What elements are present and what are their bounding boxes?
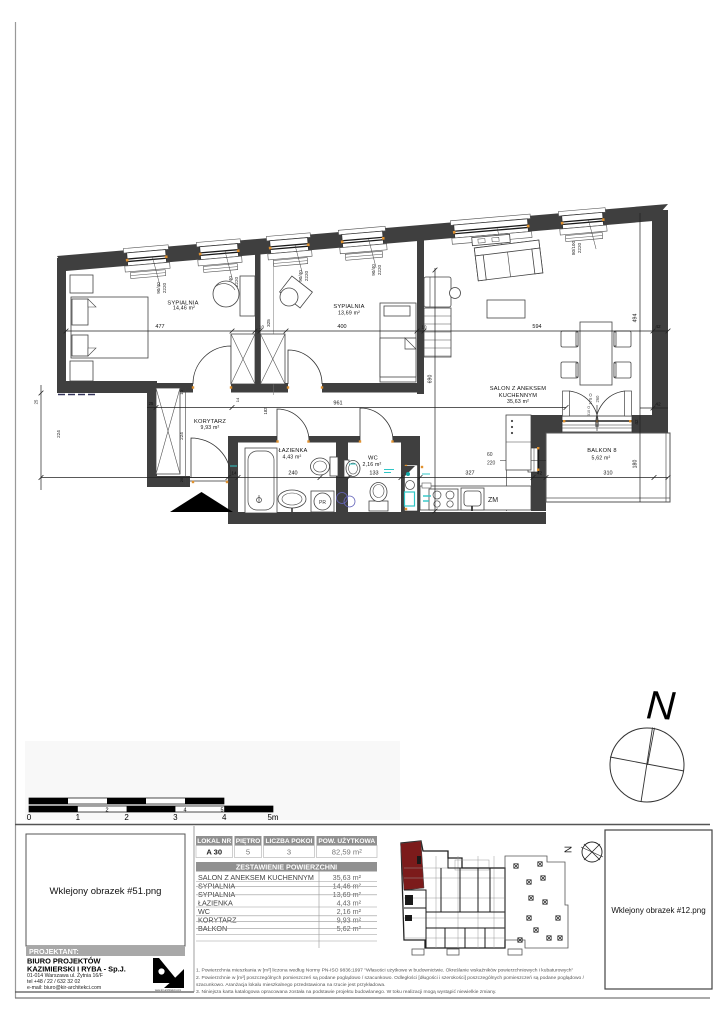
svg-text:POW. UŻYTKOWA: POW. UŻYTKOWA: [318, 837, 375, 845]
svg-text:175 O: 175 O: [588, 393, 593, 405]
svg-text:240: 240: [288, 471, 297, 477]
svg-text:594: 594: [532, 324, 541, 330]
svg-text:A 30: A 30: [206, 848, 222, 857]
svg-text:42: 42: [655, 402, 661, 408]
svg-text:PR: PR: [319, 500, 326, 506]
svg-text:LOKAL NR: LOKAL NR: [197, 838, 231, 845]
svg-text:182: 182: [263, 407, 268, 415]
svg-text:133: 133: [369, 471, 378, 477]
svg-text:5: 5: [246, 848, 250, 857]
svg-text:2,16 m²: 2,16 m²: [363, 462, 382, 468]
svg-text:Wklejony obrazek #51.png: Wklejony obrazek #51.png: [50, 886, 162, 897]
svg-text:1: 1: [66, 808, 69, 814]
svg-text:310 O: 310 O: [587, 406, 591, 416]
svg-text:35,63 m²: 35,63 m²: [507, 399, 529, 405]
svg-text:2220: 2220: [577, 242, 582, 253]
svg-text:690: 690: [428, 375, 434, 384]
svg-text:2220: 2220: [304, 270, 309, 281]
svg-text:4,43 m²: 4,43 m²: [283, 455, 302, 461]
svg-text:www.kir-architekci.com: www.kir-architekci.com: [155, 988, 181, 992]
svg-text:25: 25: [34, 399, 39, 404]
svg-text:13,69 m²: 13,69 m²: [338, 311, 360, 317]
svg-text:BALKON 8: BALKON 8: [587, 448, 616, 454]
svg-text:2: 2: [124, 813, 129, 822]
svg-text:180: 180: [633, 460, 639, 469]
svg-text:310: 310: [603, 471, 612, 477]
svg-text:477: 477: [155, 324, 164, 330]
svg-text:42: 42: [537, 471, 543, 477]
svg-text:szacunkowo. Aranżacja lokalu m: szacunkowo. Aranżacja lokalu mieszkalneg…: [196, 982, 385, 988]
svg-text:PIĘTRO: PIĘTRO: [236, 838, 261, 845]
svg-text:3: 3: [173, 813, 178, 822]
svg-text:0: 0: [27, 813, 32, 822]
svg-text:2220: 2220: [162, 282, 167, 293]
svg-text:327: 327: [465, 471, 474, 477]
svg-text:42: 42: [634, 419, 639, 425]
svg-text:SYPIALNIA: SYPIALNIA: [333, 304, 364, 310]
svg-text:260: 260: [595, 395, 600, 403]
svg-text:10: 10: [421, 325, 427, 330]
svg-text:5,62 m²: 5,62 m²: [592, 456, 611, 462]
svg-text:ZM: ZM: [488, 497, 498, 504]
svg-text:3: 3: [287, 848, 291, 857]
svg-text:325: 325: [266, 319, 271, 327]
svg-text:PROJEKTANT:: PROJEKTANT:: [29, 947, 79, 956]
svg-text:2: 2: [105, 808, 108, 814]
svg-text:14,46 m²: 14,46 m²: [173, 306, 195, 312]
svg-text:9,93 m²: 9,93 m²: [201, 425, 220, 431]
svg-text:224: 224: [56, 430, 61, 438]
svg-text:5m: 5m: [267, 813, 278, 822]
svg-text:3: 3: [144, 808, 147, 814]
svg-text:90/40: 90/40: [156, 282, 161, 294]
svg-text:90/40: 90/40: [371, 264, 376, 276]
svg-text:10: 10: [179, 390, 184, 395]
svg-text:ŁAZIENKA: ŁAZIENKA: [278, 448, 307, 454]
svg-text:LICZBA POKOI: LICZBA POKOI: [265, 838, 312, 845]
svg-text:e-mail: biuro@kir-architekci.: e-mail: biuro@kir-architekci.com: [27, 985, 101, 991]
svg-text:14: 14: [231, 471, 237, 476]
svg-text:N: N: [645, 683, 676, 728]
svg-text:90/40: 90/40: [298, 270, 303, 282]
svg-text:WC: WC: [368, 456, 378, 462]
svg-text:01-014 Warszawa ul. Żytnia 16/: 01-014 Warszawa ul. Żytnia 16/F: [27, 972, 103, 979]
svg-text:42: 42: [655, 324, 661, 330]
svg-text:4: 4: [183, 808, 186, 814]
svg-text:2220: 2220: [377, 264, 382, 275]
svg-text:220: 220: [487, 461, 496, 467]
svg-text:494: 494: [633, 314, 639, 323]
svg-text:SALON Z ANEKSEM: SALON Z ANEKSEM: [490, 386, 546, 392]
svg-text:N: N: [564, 846, 575, 853]
svg-text:14: 14: [235, 397, 240, 402]
svg-text:3. Niniejsza karta katalogowa: 3. Niniejsza karta katalogowa opracowana…: [196, 989, 496, 995]
svg-text:224: 224: [179, 432, 184, 440]
svg-text:961: 961: [333, 401, 342, 407]
svg-text:400: 400: [337, 324, 346, 330]
svg-text:ZESTAWIENIE POWIERZCHNI: ZESTAWIENIE POWIERZCHNI: [236, 863, 337, 872]
svg-text:2. Powierzchnie w [m²] poszcze: 2. Powierzchnie w [m²] poszczególnych po…: [196, 975, 585, 981]
svg-text:4: 4: [222, 813, 227, 822]
svg-text:82,59 m²: 82,59 m²: [332, 848, 362, 857]
svg-text:Wklejony obrazek #12.png: Wklejony obrazek #12.png: [611, 906, 705, 915]
svg-text:1. Powierzchnia mieszkania w [: 1. Powierzchnia mieszkania w [m²] liczon…: [196, 968, 573, 974]
svg-text:80/100: 80/100: [571, 241, 576, 255]
svg-text:25: 25: [179, 477, 184, 482]
svg-text:10: 10: [259, 325, 265, 330]
svg-text:25: 25: [149, 401, 154, 406]
svg-text:1: 1: [76, 813, 81, 822]
svg-text:60: 60: [487, 452, 493, 458]
